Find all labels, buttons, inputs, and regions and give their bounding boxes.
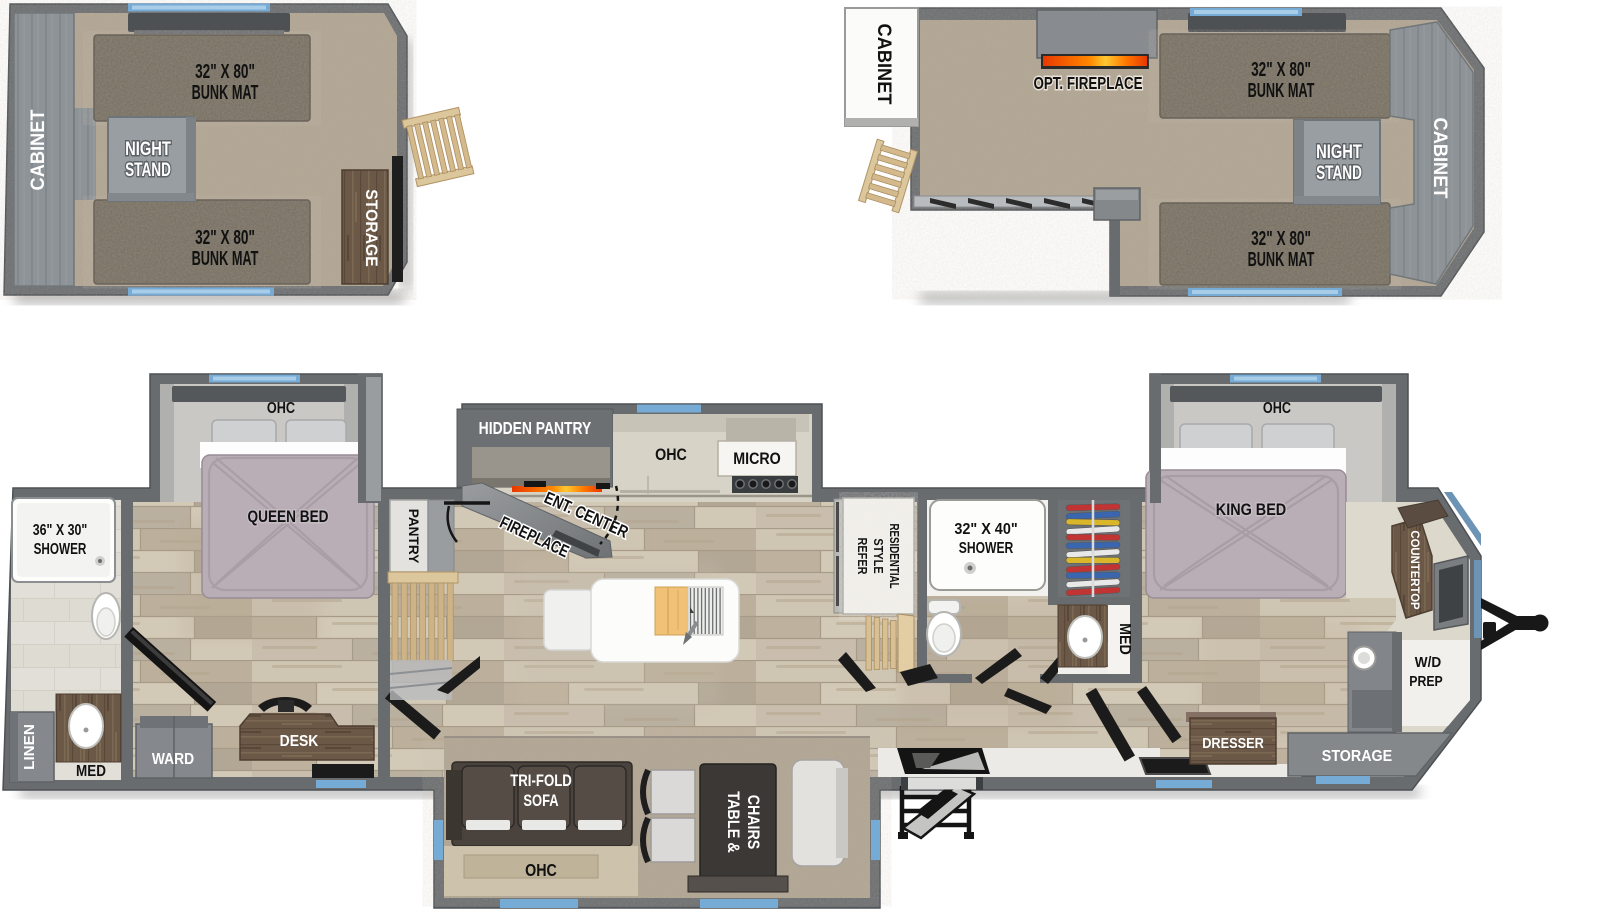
svg-text:SOFA: SOFA [523,792,559,810]
svg-text:COUNTERTOP: COUNTERTOP [1408,530,1421,609]
svg-text:SHOWER: SHOWER [34,540,87,558]
svg-text:QUEEN BED: QUEEN BED [248,508,329,526]
svg-text:OHC: OHC [525,860,557,880]
svg-text:STYLE: STYLE [871,538,886,573]
svg-text:TRI-FOLD: TRI-FOLD [510,772,572,790]
svg-text:STORAGE: STORAGE [1322,747,1392,765]
svg-text:32" X 80": 32" X 80" [195,60,255,82]
svg-text:CHAIRS: CHAIRS [744,795,762,850]
svg-text:MICRO: MICRO [733,450,781,468]
svg-text:32" X 80": 32" X 80" [195,226,255,248]
svg-text:STAND: STAND [1316,162,1362,183]
svg-text:KING BED: KING BED [1216,501,1286,519]
svg-text:DESK: DESK [280,732,319,750]
svg-text:MED: MED [76,762,106,780]
svg-text:W/D: W/D [1415,653,1441,670]
svg-text:MED: MED [1116,623,1134,655]
svg-text:32" X 40": 32" X 40" [954,520,1017,538]
svg-text:SHOWER: SHOWER [959,539,1014,557]
svg-text:OPT. FIREPLACE: OPT. FIREPLACE [1033,73,1142,93]
svg-text:32" X 80": 32" X 80" [1251,58,1311,80]
svg-text:LINEN: LINEN [20,724,37,770]
svg-text:BUNK MAT: BUNK MAT [1248,79,1315,101]
svg-text:OHC: OHC [655,446,687,464]
svg-text:STAND: STAND [125,159,171,180]
svg-text:36" X 30": 36" X 30" [33,521,88,539]
svg-text:OHC: OHC [267,399,295,417]
svg-text:OHC: OHC [1263,399,1291,417]
svg-text:STORAGE: STORAGE [362,189,380,267]
svg-text:BUNK MAT: BUNK MAT [192,81,259,103]
svg-text:CABINET: CABINET [27,109,48,190]
svg-text:TABLE &: TABLE & [724,791,742,853]
svg-text:REFER: REFER [855,538,870,575]
svg-text:NIGHT: NIGHT [125,138,171,159]
svg-text:CABINET: CABINET [1430,118,1451,199]
svg-text:DRESSER: DRESSER [1202,734,1264,751]
svg-text:PANTRY: PANTRY [406,509,422,564]
svg-text:CABINET: CABINET [874,24,895,105]
svg-text:WARD: WARD [152,750,194,768]
svg-text:BUNK MAT: BUNK MAT [192,247,259,269]
svg-text:HIDDEN PANTRY: HIDDEN PANTRY [479,418,592,438]
svg-text:PREP: PREP [1409,672,1442,689]
svg-text:BUNK MAT: BUNK MAT [1248,248,1315,270]
svg-text:32" X 80": 32" X 80" [1251,227,1311,249]
svg-text:RESIDENTIAL: RESIDENTIAL [887,523,902,589]
svg-text:NIGHT: NIGHT [1316,141,1362,162]
